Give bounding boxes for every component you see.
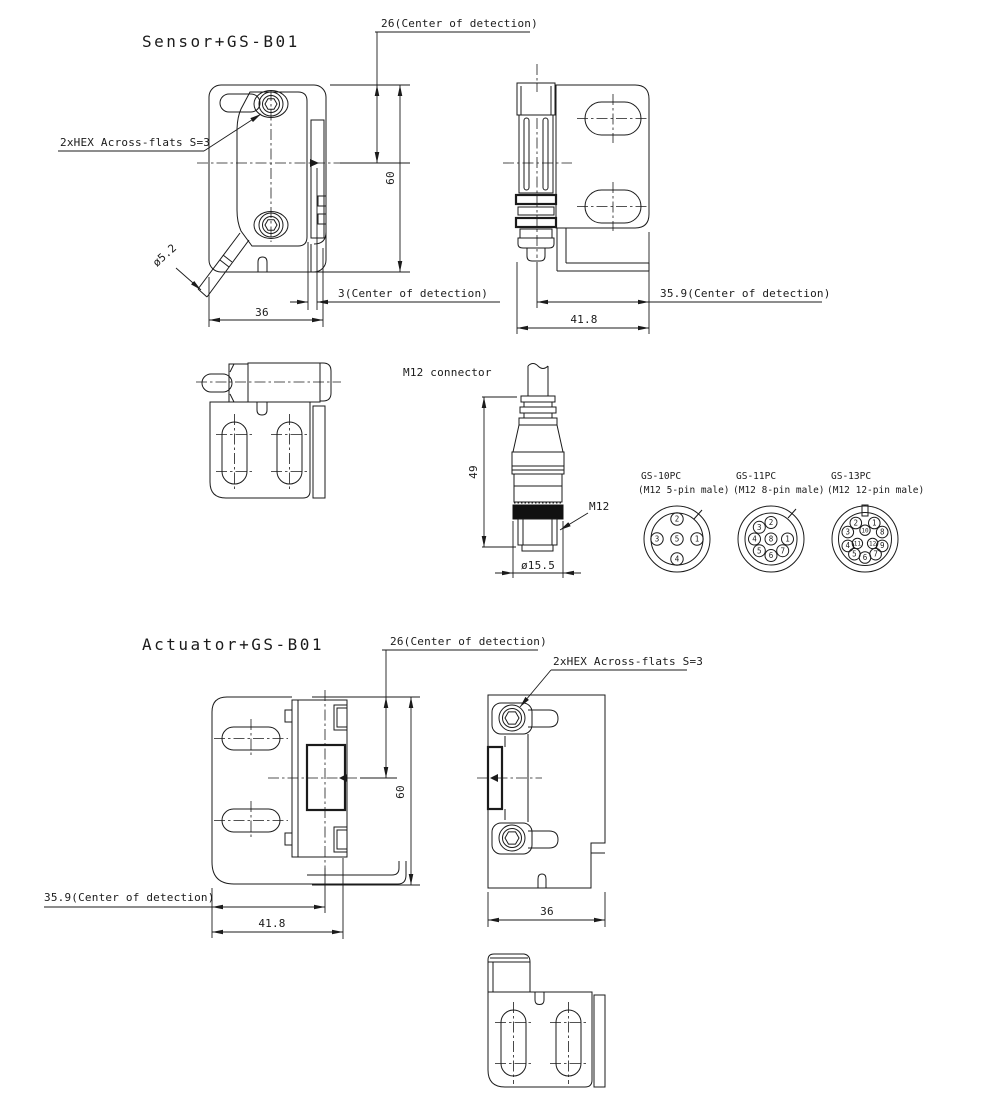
- sensor-body: [237, 92, 307, 246]
- pinout-type: (M12 12-pin male): [827, 485, 924, 496]
- bracket-plate: [209, 85, 326, 272]
- bracket-flange: [313, 406, 325, 498]
- pinout-name: GS-13PC: [831, 471, 871, 482]
- svg-text:7: 7: [780, 546, 785, 555]
- bracket-foot: [557, 228, 649, 271]
- svg-text:26(Center of detection): 26(Center of detection): [390, 635, 547, 648]
- svg-text:5: 5: [675, 535, 680, 544]
- svg-text:2: 2: [675, 515, 680, 524]
- svg-text:36: 36: [255, 306, 269, 319]
- pinout-type: (M12 8-pin male): [733, 485, 825, 496]
- pinout-type: (M12 5-pin male): [638, 485, 730, 496]
- sensor-section: Sensor+GS-B01 26(Center of detection) 60: [58, 17, 831, 334]
- bracket-notch: [258, 257, 267, 272]
- svg-text:10: 10: [861, 527, 869, 534]
- svg-text:7: 7: [873, 550, 878, 559]
- sensor-dim-3-center-of-detection: 3(Center of detection): [290, 168, 500, 310]
- svg-text:12: 12: [869, 541, 877, 548]
- connector-plug: [518, 519, 557, 545]
- sensor-front-view: [197, 85, 342, 297]
- bracket-notch: [535, 992, 544, 1005]
- connector-dim-diameter: ø15.5: [495, 521, 581, 578]
- bracket-notch: [257, 402, 267, 415]
- svg-text:5: 5: [852, 550, 857, 559]
- sensor-top-view: [196, 363, 341, 498]
- actuator-dim-26-center-of-detection: 26(Center of detection): [382, 635, 547, 778]
- svg-text:4: 4: [675, 555, 680, 564]
- pinout-gs-11pc: GS-11PC (M12 8-pin male) 1 2 3 4 5 6 7 8: [733, 471, 825, 572]
- svg-text:2: 2: [769, 518, 774, 527]
- svg-text:9: 9: [880, 541, 885, 550]
- sensor-dim-359: 35.9(Center of detection): [537, 232, 831, 308]
- m12-connector-title: M12 connector: [403, 366, 492, 379]
- svg-text:ø15.5: ø15.5: [521, 559, 555, 572]
- actuator-face-block: [307, 745, 345, 810]
- svg-text:11: 11: [854, 541, 862, 548]
- svg-text:49: 49: [467, 465, 480, 479]
- sensor-tip: [527, 248, 545, 261]
- actuator-right-view: [477, 695, 605, 888]
- svg-text:2: 2: [854, 518, 859, 527]
- svg-text:3: 3: [846, 527, 851, 536]
- svg-text:3: 3: [757, 523, 762, 532]
- sensor-side-view: [503, 64, 649, 271]
- actuator-bottom-view: [488, 954, 605, 1087]
- hex-screw-bottom: [492, 823, 532, 854]
- sensor-nut-ring: [516, 195, 556, 204]
- knurled-ring: [513, 505, 563, 519]
- bracket-plate-top: [210, 402, 310, 498]
- actuator-head: [488, 954, 530, 992]
- technical-drawing-page: Sensor+GS-B01 26(Center of detection) 60: [0, 0, 1000, 1100]
- svg-text:1: 1: [872, 518, 877, 527]
- connector-dim-49: 49: [467, 397, 517, 547]
- pinout-name: GS-11PC: [736, 471, 776, 482]
- sensor-hex-label: 2xHEX Across-flats S=3: [58, 114, 261, 151]
- svg-text:8: 8: [769, 535, 774, 544]
- actuator-section: Actuator+GS-B01 26(Center of detection) …: [44, 635, 703, 1087]
- svg-text:60: 60: [394, 785, 407, 799]
- cable-stub: [202, 374, 232, 392]
- svg-text:3: 3: [655, 535, 660, 544]
- pinout-gs-13pc: GS-13PC (M12 12-pin male) 1 2 3 4 5 6 7 …: [827, 471, 924, 572]
- svg-text:60: 60: [384, 171, 397, 185]
- actuator-dim-418: 41.8: [212, 858, 343, 939]
- actuator-body: [285, 700, 347, 857]
- bracket-plate: [212, 712, 406, 884]
- middle-section: M12 connector: [196, 363, 924, 578]
- svg-text:8: 8: [880, 527, 885, 536]
- sensor-cap: [517, 83, 555, 115]
- sensor-cable: [198, 233, 249, 297]
- sensor-dim-36: 36: [209, 248, 323, 327]
- actuator-dim-36: 36: [488, 892, 605, 927]
- svg-text:2xHEX Across-flats S=3: 2xHEX Across-flats S=3: [553, 655, 703, 668]
- bracket-foot: [307, 861, 399, 875]
- svg-text:36: 36: [540, 905, 554, 918]
- svg-text:4: 4: [846, 541, 851, 550]
- svg-text:6: 6: [769, 551, 774, 560]
- svg-text:35.9(Center of detection): 35.9(Center of detection): [44, 891, 215, 904]
- hex-screw-top: [492, 703, 532, 734]
- svg-text:M12: M12: [589, 500, 609, 513]
- svg-text:26(Center of detection): 26(Center of detection): [381, 17, 538, 30]
- actuator-title: Actuator+GS-B01: [142, 635, 324, 654]
- svg-text:41.8: 41.8: [258, 917, 285, 930]
- svg-text:5: 5: [757, 546, 762, 555]
- sensor-cable-diameter-label: ø5.2: [150, 241, 201, 290]
- svg-text:2xHEX Across-flats S=3: 2xHEX Across-flats S=3: [60, 136, 210, 149]
- svg-text:6: 6: [863, 553, 868, 562]
- pinout-gs-10pc: GS-10PC (M12 5-pin male) 1 2 3 4 5: [638, 471, 730, 572]
- svg-text:1: 1: [695, 535, 700, 544]
- svg-text:35.9(Center of detection): 35.9(Center of detection): [660, 287, 831, 300]
- connector-boot: [513, 425, 563, 452]
- connector-thread-label: M12: [560, 500, 609, 530]
- sensor-barrel-top: [248, 363, 320, 402]
- sensor-dim-26-center-of-detection: 26(Center of detection): [375, 17, 538, 163]
- actuator-plate: [488, 695, 605, 888]
- pinout-name: GS-10PC: [641, 471, 681, 482]
- m12-connector-view: M12 connector: [403, 364, 609, 579]
- drawing-canvas: Sensor+GS-B01 26(Center of detection) 60: [0, 0, 1000, 1100]
- svg-text:ø5.2: ø5.2: [150, 241, 179, 269]
- svg-text:41.8: 41.8: [570, 313, 597, 326]
- svg-text:1: 1: [785, 535, 790, 544]
- actuator-left-view: [212, 690, 406, 884]
- connector-body: [512, 452, 564, 474]
- svg-text:4: 4: [752, 535, 757, 544]
- actuator-hex-label: 2xHEX Across-flats S=3: [520, 655, 703, 707]
- bracket-flange: [594, 995, 605, 1087]
- key-slot: [862, 505, 868, 516]
- bracket-notch: [538, 874, 546, 888]
- svg-text:3(Center of detection): 3(Center of detection): [338, 287, 488, 300]
- sensor-title: Sensor+GS-B01: [142, 32, 300, 51]
